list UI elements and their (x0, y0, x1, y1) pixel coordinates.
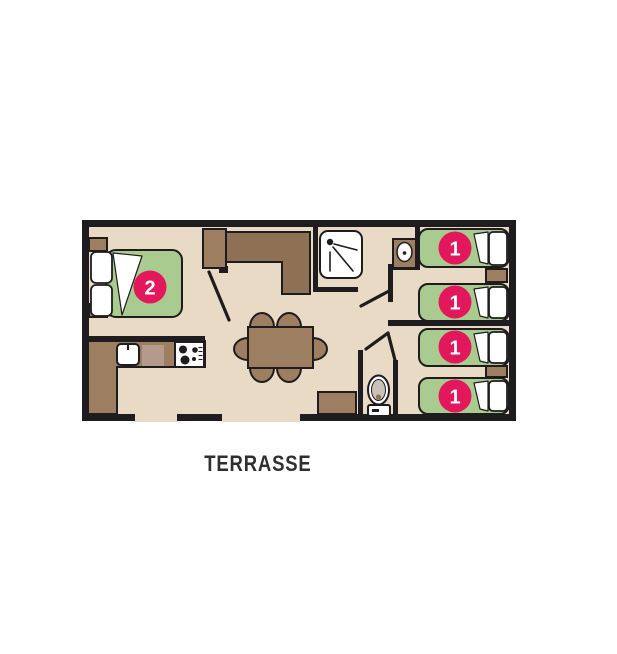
cabinet-icon (318, 392, 356, 414)
single-bed-capacity: 1 (449, 239, 460, 261)
floorplan-canvas: 2 (0, 0, 617, 654)
burner-icon (181, 356, 190, 365)
dining-table-icon (248, 327, 313, 368)
bed-pillow (489, 332, 507, 363)
shower-icon (320, 231, 362, 278)
burner-icon (192, 347, 198, 353)
nightstand-icon (486, 269, 507, 282)
wardrobe-icon (203, 229, 226, 268)
kitchen-worktop (142, 345, 164, 366)
single-bedrooms: 1 1 1 1 (419, 229, 509, 414)
headboard-post-top (89, 238, 107, 251)
burner-icon (192, 357, 196, 361)
double-bed-pillow-top (91, 252, 112, 283)
terrace-label-row: TERRASSE (0, 451, 516, 477)
terrace-label: TERRASSE (204, 451, 311, 477)
single-bed-capacity: 1 (449, 387, 460, 409)
shower-room-left-wall (313, 226, 318, 292)
burner-icon (179, 346, 187, 354)
toilet-tank-button (372, 409, 379, 412)
floorplan-drawing: 2 (0, 0, 617, 654)
bed-pillow (489, 232, 507, 265)
bed-pillow (489, 287, 507, 318)
washbasin-drain (403, 251, 407, 255)
window-opening (135, 413, 177, 422)
shower-head-icon (327, 239, 333, 245)
single-bed-capacity: 1 (449, 293, 460, 315)
single-bed-capacity: 1 (449, 338, 460, 360)
wc-right-wall (393, 360, 398, 414)
terrace-door-opening (222, 413, 300, 422)
hall-wall (388, 268, 393, 302)
wc-room (368, 376, 390, 417)
toilet-flush (376, 394, 381, 399)
wc-left-wall (358, 350, 363, 414)
double-bed-capacity: 2 (144, 278, 155, 300)
nightstand-icon (486, 366, 507, 377)
stove-icon (175, 342, 204, 367)
bed-pillow (489, 381, 507, 411)
shower-room-bottom-wall (313, 287, 358, 292)
double-bed-pillow-bottom (91, 285, 112, 316)
